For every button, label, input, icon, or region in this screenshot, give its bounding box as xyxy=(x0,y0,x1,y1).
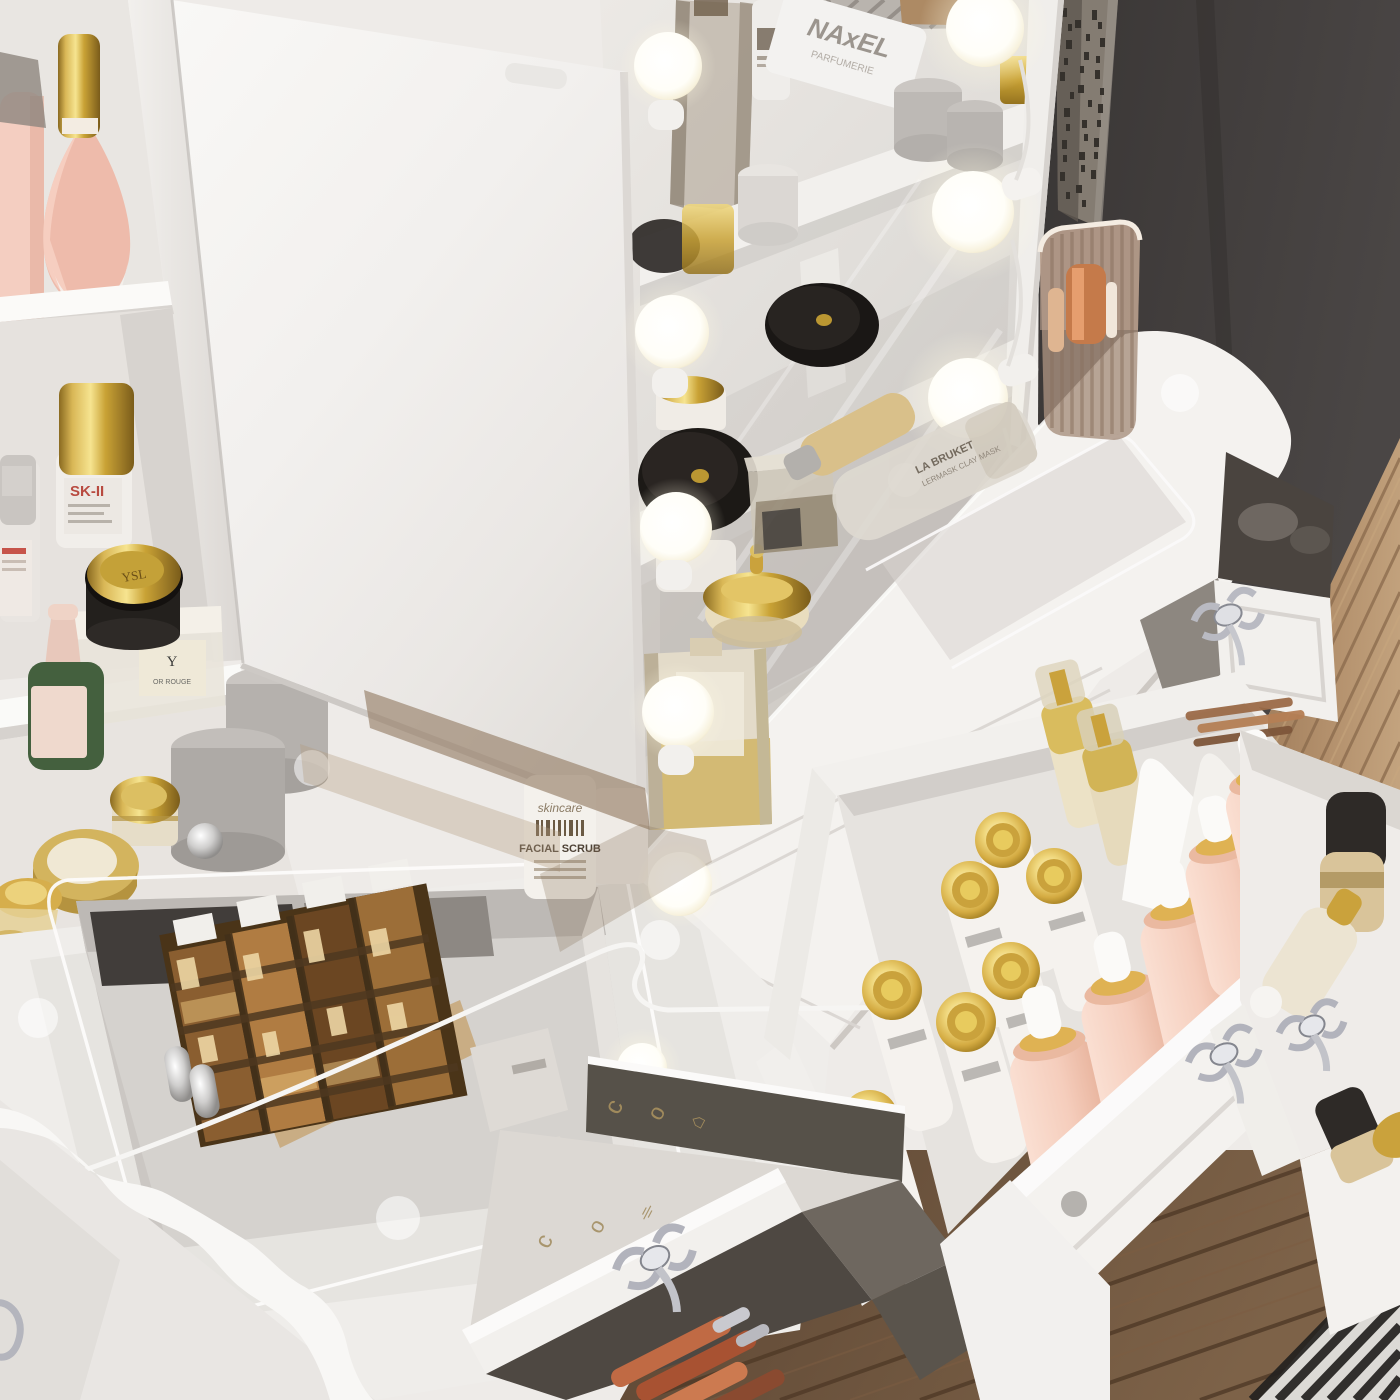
svg-text:OR ROUGE: OR ROUGE xyxy=(153,679,191,686)
svg-text:SK-II: SK-II xyxy=(70,483,104,500)
svg-text:Y: Y xyxy=(167,654,178,670)
svg-text:skincare: skincare xyxy=(538,801,583,815)
